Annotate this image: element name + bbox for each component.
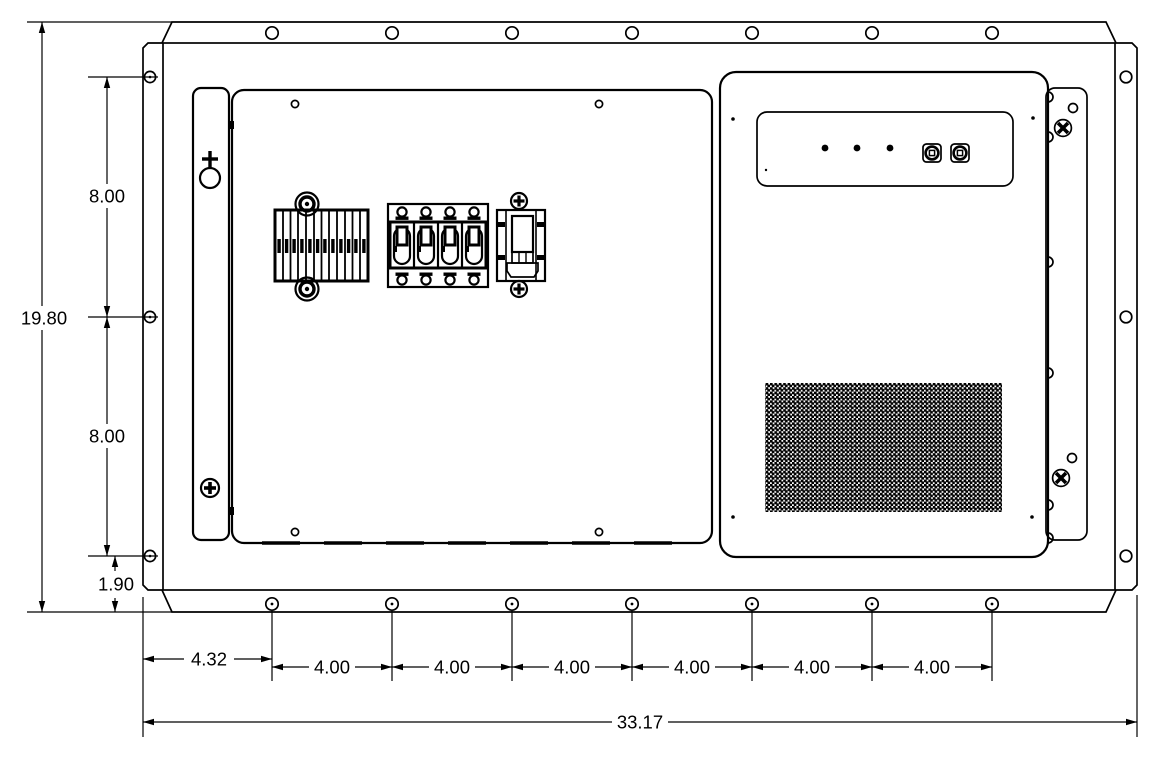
bracket-screw-bottom	[1053, 470, 1070, 487]
dim-pitch-3-label: 4.00	[554, 657, 590, 678]
dim-side-pitch-lower-label: 8.00	[89, 426, 125, 447]
dim-pitch-5-label: 4.00	[794, 657, 830, 678]
dim-pitch-4-label: 4.00	[674, 657, 710, 678]
dim-bottom-edge-offset-label: 4.32	[191, 649, 227, 670]
vent-grille	[765, 383, 1002, 512]
breaker-terminals-bottom	[396, 273, 481, 285]
heatsink-block	[275, 193, 368, 301]
right-flange-holes	[1120, 71, 1132, 562]
dim-side-pitch-lower: 8.00	[89, 317, 125, 556]
contactor-base	[507, 263, 538, 277]
dim-overall-height: 19.80	[21, 22, 67, 612]
left-mounting-rail	[193, 88, 229, 540]
rail-screw-icon	[201, 479, 219, 497]
dim-overall-width: 33.17	[143, 712, 1137, 733]
dim-pitch-1-label: 4.00	[314, 657, 350, 678]
flange-outline	[143, 22, 1137, 612]
contactor-plunger	[512, 216, 533, 252]
dim-side-edge-offset-label: 1.90	[98, 574, 134, 595]
power-module	[720, 72, 1053, 557]
round-connector-icon-1	[923, 144, 941, 162]
engineering-drawing-sheet: 19.80 8.00 8.00 1.90 4.32	[0, 0, 1161, 758]
bracket-screw-top	[1055, 120, 1072, 137]
dim-overall-height-label: 19.80	[21, 308, 67, 329]
panel-drawing: 19.80 8.00 8.00 1.90 4.32	[0, 0, 1161, 758]
ground-keyhole-icon	[200, 151, 220, 188]
breaker-bank	[388, 204, 488, 287]
edge-tab-top	[230, 121, 234, 129]
bottom-flange-holes	[266, 598, 998, 610]
dim-side-pitch-upper: 8.00	[89, 77, 125, 317]
dim-pitch-6-label: 4.00	[914, 657, 950, 678]
heatsink-standoff-bottom	[296, 278, 319, 301]
edge-tab-bottom	[230, 507, 234, 515]
dim-side-edge-offset: 1.90	[98, 556, 134, 612]
dim-side-pitch-upper-label: 8.00	[89, 186, 125, 207]
backplane-screw-holes	[291, 100, 602, 535]
dim-pitch-2-label: 4.00	[434, 657, 470, 678]
dim-bottom-edge-offset: 4.32	[143, 649, 272, 670]
breaker-terminals-top	[396, 207, 481, 220]
heatsink-standoff-top	[296, 193, 319, 216]
contactor-screw-top	[511, 193, 527, 209]
dim-overall-width-label: 33.17	[617, 712, 663, 733]
status-led-icons	[822, 145, 894, 152]
round-connector-icon-2	[951, 144, 969, 162]
contactor-contacts	[498, 222, 544, 260]
contactor-screw-bottom	[511, 281, 527, 297]
bracket-hardware	[1053, 104, 1078, 487]
backplane-panel	[230, 90, 712, 543]
contactor	[497, 193, 545, 297]
control-strip	[757, 112, 1013, 186]
top-flange-holes	[266, 27, 998, 39]
dimensions: 19.80 8.00 8.00 1.90 4.32	[21, 22, 1137, 737]
